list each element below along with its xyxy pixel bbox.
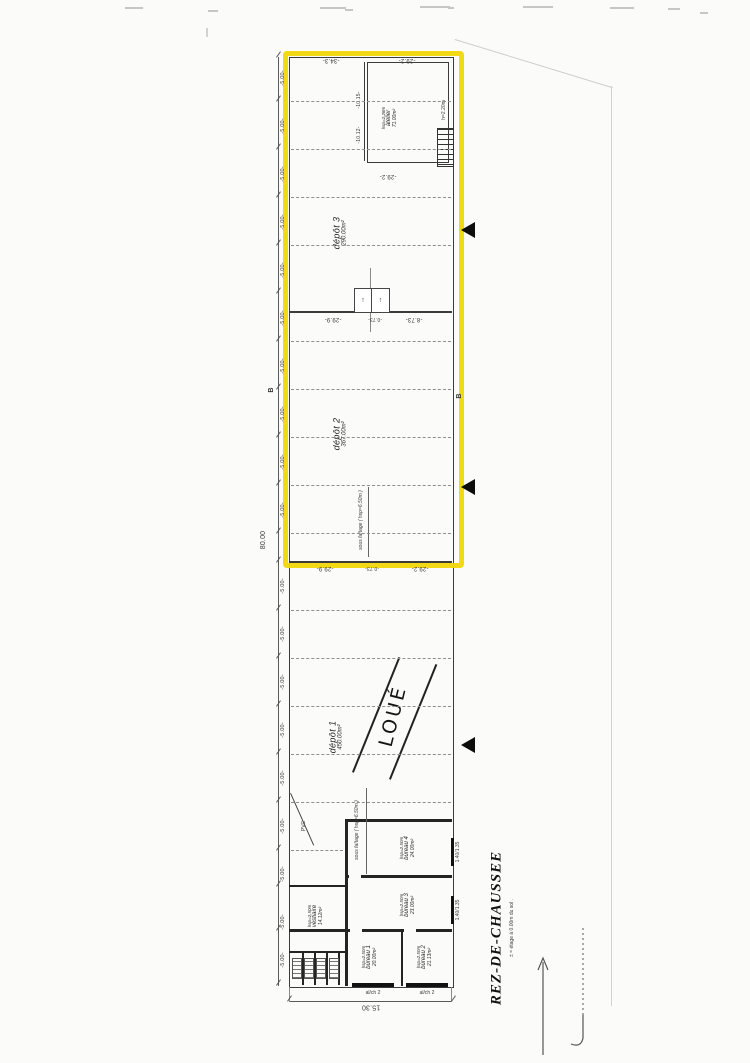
dimension-label: -0.73- [365,565,379,571]
bay-dashed-line [291,197,451,198]
window-segment [451,896,454,924]
vestiaire-bottom-wall [289,951,345,953]
bay-dimension-label: -5.00- [280,310,286,326]
total-width-dimension: 15.30 [362,1004,381,1011]
scan-noise-dash [668,8,680,10]
bay-dashed-line [291,610,451,611]
bottom-dimension-line [289,1001,452,1002]
bay-dimension-label: -5.00- [280,952,286,968]
bay-dashed-line [291,706,451,707]
bay-dashed-line [291,389,451,390]
dimension-label: -10.15- [357,91,363,108]
door-gap [349,874,361,879]
window-dimension: 1.40/1.35 [456,900,462,921]
highlight-rectangle [283,51,464,568]
room-label-vestiaire: hsp=2.50m vestiaire 14.12m² [307,905,325,927]
room-label-atelier: hsp=2.28m atelier 71.00m² [381,107,399,129]
room-label-bureau-4: hsp=2.50m bureau 4 24.00m² [399,836,417,860]
bay-dimension-label: -5.00- [280,454,286,470]
door-gap [350,928,362,933]
entrance-triangle-icon [461,222,475,238]
bay-dimension-label: -5.00- [280,214,286,230]
dimension-label: -29.2- [412,565,429,571]
bay-dimension-label: -5.00- [280,406,286,422]
sanitary-fixture [329,958,339,979]
window-dimension: 1.40/1.35 [456,842,462,863]
wall-bureau4-bureau3 [345,875,452,878]
bay-dashed-line [291,437,451,438]
faitage-note: sous faîtage ( hsp=6.50m ) [355,800,361,860]
section-marker-b: B [456,393,464,398]
floor-plan-drawing: h=2.20m ↑ ↑ al/ch 2 al/ch 2 1.40/1.35 1.… [0,0,750,1063]
entrance-triangle-icon [461,479,475,495]
sanitary-fixture [292,958,302,979]
bay-dimension-label: -5.00- [280,722,286,738]
room-label-bureau-2: hsp=2.50m bureau 2 21.13m² [416,945,434,969]
bay-dimension-label: -5.00- [280,770,286,786]
scanned-floor-plan-page: h=2.20m ↑ ↑ al/ch 2 al/ch 2 1.40/1.35 1.… [0,0,750,1063]
leader-line [366,788,367,874]
entrance-triangle-icon [461,737,475,753]
total-height-dimension: 80.00 [260,531,268,550]
dimension-label: -34.3- [323,57,340,63]
bay-dimension-label: -5.00- [280,262,286,278]
leader-line [368,487,369,557]
bay-dimension-label: -5.00- [280,578,286,594]
wall-bureau1-bureau2 [401,930,403,986]
faitage-note: sous faîtage ( hsp=6.50m ) [359,490,365,550]
window-label: al/ch 2 [420,990,435,996]
scan-speck [206,28,208,37]
scan-noise-dash [448,7,454,9]
scan-noise-dash [700,12,708,14]
bay-dashed-line [291,341,451,342]
bay-dashed-line [291,802,451,803]
dimension-label: -29.9- [325,316,342,322]
scan-noise-dash [320,7,346,9]
bay-dimension-label: -5.00- [280,166,286,182]
bay-dimension-label: -5.00- [280,70,286,86]
dimension-label: -8.73- [406,316,423,322]
pen-marks [515,920,625,1060]
bay-dashed-line [291,658,451,659]
section-marker-b: B [268,387,276,392]
bay-dimension-label: -5.00- [280,358,286,374]
vestiaire-top-wall [289,885,345,887]
scan-noise-dash [610,7,634,9]
bay-dashed-line [291,101,451,102]
corridor-wall [289,929,452,932]
scan-noise-dash [420,6,450,8]
dimension-label: -29.2- [399,57,416,63]
window-segment [451,838,454,866]
sanitary-fixture [316,958,326,979]
bay-dashed-line [291,245,451,246]
bay-dashed-line [291,533,451,534]
dimension-label: -29.9- [317,565,334,571]
bay-dashed-line [291,485,451,486]
office-top-wall [345,819,452,822]
room-label-bureau-1: hsp=2.50m bureau 1 20.00m² [361,945,379,969]
scan-noise-dash [523,6,553,8]
sanitary-fixture [304,958,314,979]
window-segment [352,983,394,987]
bay-dimension-label: -5.00- [280,866,286,882]
bay-dimension-label: -5.00- [280,818,286,834]
small-room-divider [326,952,328,985]
scan-noise-dash [125,7,143,9]
dimension-label: -10.12- [357,126,363,143]
office-left-wall [345,819,348,986]
paper-edge-vertical [611,86,612,1006]
bay-dimension-label: -5.00- [280,118,286,134]
dimension-label: -0.73- [368,316,382,322]
bay-dimension-label: -5.00- [280,674,286,690]
bay-dimension-label: -5.00- [280,502,286,518]
bay-dashed-line [291,149,451,150]
room-label-depot-1: dépôt 1 450.00m² [327,721,344,754]
scan-noise-dash [345,9,353,11]
bay-dimension-label: -5.00- [280,914,286,930]
dimension-label: -29.2- [380,173,397,179]
scan-noise-dash [208,10,218,12]
window-segment [406,983,448,987]
bay-dashed-line [291,754,451,755]
room-label-bureau-3: hsp=2.50m bureau 3 23.00m² [399,893,417,917]
paper-edge-diagonal [455,39,613,88]
pvc-label: PVC [302,821,308,831]
bay-dimension-label: -5.00- [280,626,286,642]
page-title: REZ-DE-CHAUSSEE [488,851,505,1005]
window-label: al/ch 2 [366,990,381,996]
room-label-depot-2: dépôt 2 367.00m² [331,418,348,451]
bay-dashed-line [291,850,343,851]
door-gap [404,928,416,933]
